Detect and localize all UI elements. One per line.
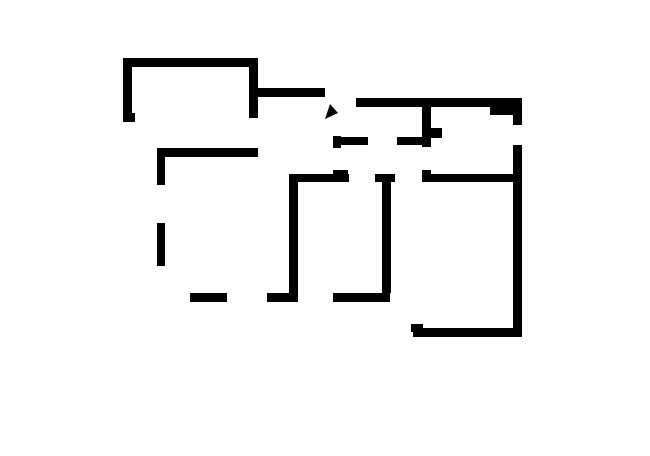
bedroom-right-wall [249,58,258,118]
bottom-right-corner-post [411,324,423,332]
bedroom-left-wall [123,58,132,115]
right-wall-lower [513,145,522,337]
hall-top-wall [257,88,325,97]
corridor-left-post-lower [333,170,348,182]
kitchen-left-post-lower [422,170,431,182]
room-bathroom [344,107,422,137]
room-kitchen [431,107,513,174]
living-bottom-wall-left [190,293,227,302]
living-left-wall-upper [157,148,165,185]
floor-plan-canvas [0,0,650,456]
corridor-bottom-wall-c [422,174,514,182]
right-wall-upper [513,98,522,125]
kitchen-wall-tab [431,128,442,138]
room-middle-right [391,182,513,328]
balcony-area [90,121,190,373]
living-left-wall-lower [157,223,165,266]
main-top-wall [356,98,522,107]
bottom-right-room-wall [413,328,522,337]
top-right-block [490,107,513,115]
corridor-bottom-wall-b [375,174,395,182]
bedroom-top-wall [123,58,257,67]
middle-left-room-left-wall [289,174,298,302]
living-bottom-wall-right [333,293,390,302]
kitchen-left-wall [422,107,431,147]
middle-divider-wall [382,182,391,293]
floor-plan [0,0,650,456]
room-middle-left [298,182,382,293]
corridor-left-post-upper [333,136,341,148]
room-corridor [341,145,422,174]
bedroom-bottom-wall [157,148,258,157]
bedroom-left-wall-foot [123,113,135,122]
